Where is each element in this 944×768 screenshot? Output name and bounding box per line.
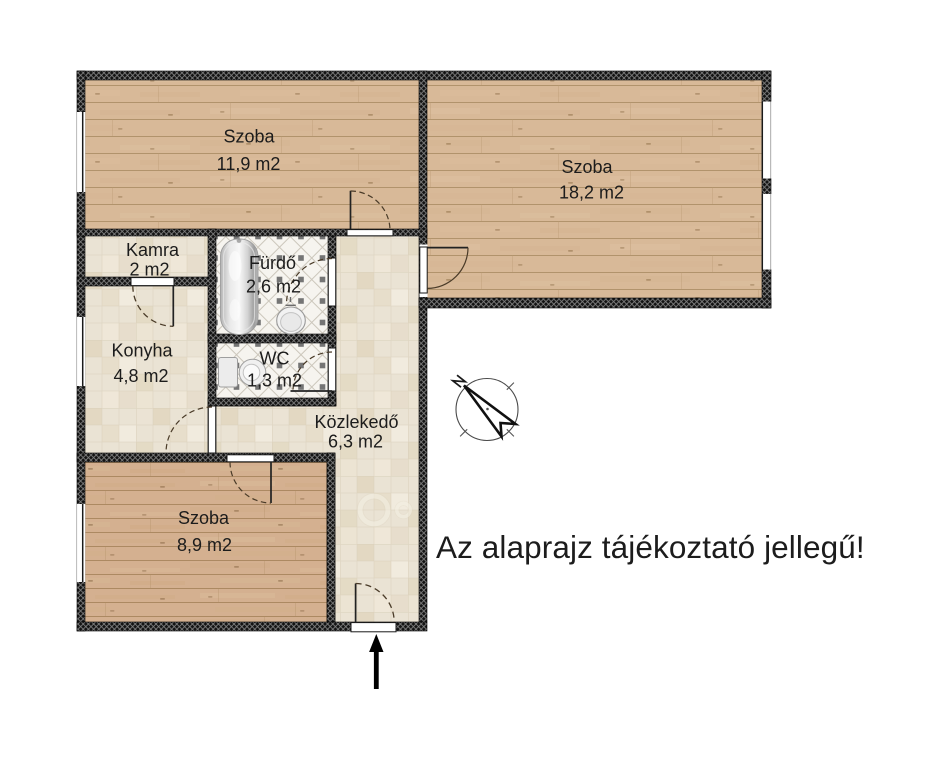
- svg-text:Közlekedő: Közlekedő: [314, 412, 398, 432]
- svg-text:2 m2: 2 m2: [129, 260, 169, 280]
- svg-text:Kamra: Kamra: [126, 240, 180, 260]
- svg-text:6,3 m2: 6,3 m2: [328, 432, 383, 452]
- svg-text:18,2 m2: 18,2 m2: [559, 183, 624, 203]
- svg-text:Fürdő: Fürdő: [249, 253, 296, 273]
- svg-text:4,8 m2: 4,8 m2: [113, 366, 168, 386]
- svg-text:11,9 m2: 11,9 m2: [217, 154, 281, 174]
- svg-text:8,9 m2: 8,9 m2: [177, 535, 232, 555]
- svg-text:WC: WC: [260, 349, 290, 369]
- svg-text:2,6 m2: 2,6 m2: [246, 277, 301, 297]
- svg-text:Szoba: Szoba: [178, 508, 230, 528]
- svg-text:Az alaprajz tájékoztató jelleg: Az alaprajz tájékoztató jellegű!: [436, 529, 865, 565]
- svg-text:Konyha: Konyha: [111, 341, 173, 361]
- svg-text:Szoba: Szoba: [223, 127, 275, 147]
- svg-text:Szoba: Szoba: [561, 157, 613, 177]
- svg-text:1,3 m2: 1,3 m2: [247, 371, 302, 391]
